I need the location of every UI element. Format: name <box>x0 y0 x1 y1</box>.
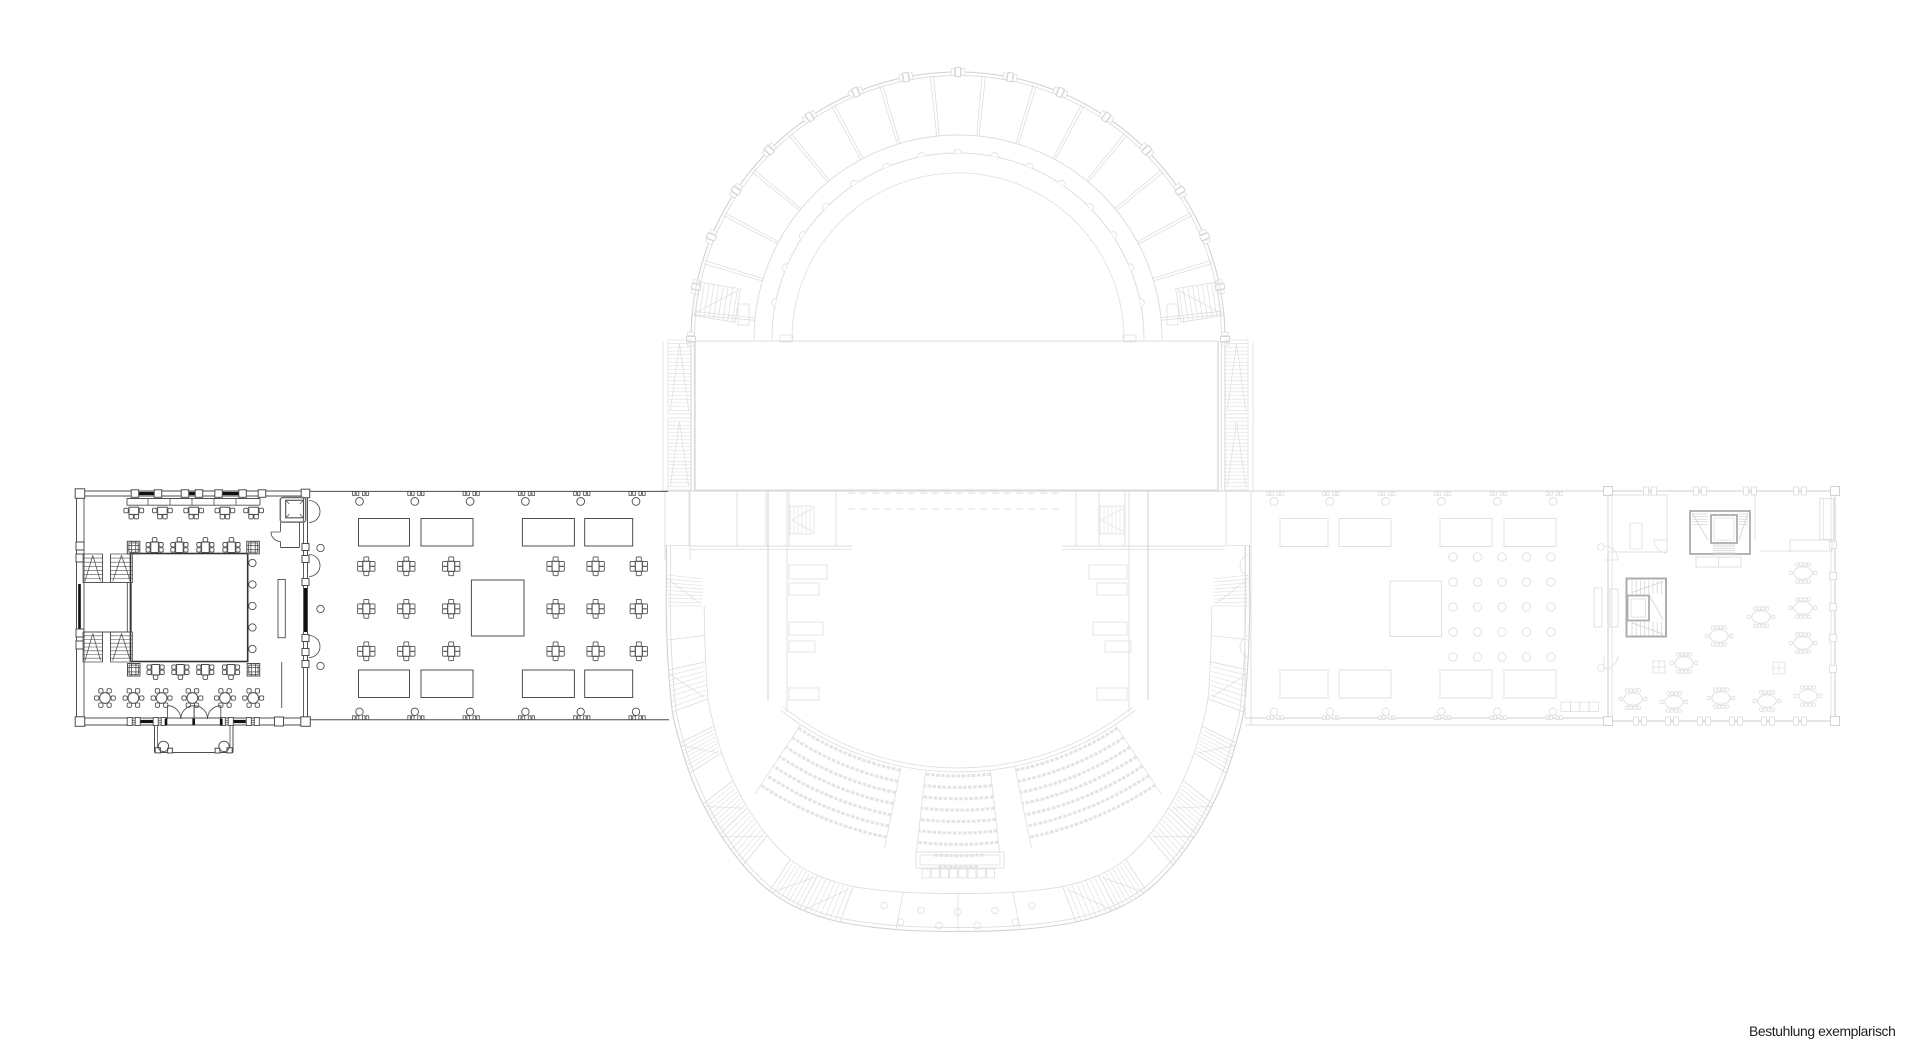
svg-text:Bestuhlung exemplarisch: Bestuhlung exemplarisch <box>1749 1023 1895 1039</box>
